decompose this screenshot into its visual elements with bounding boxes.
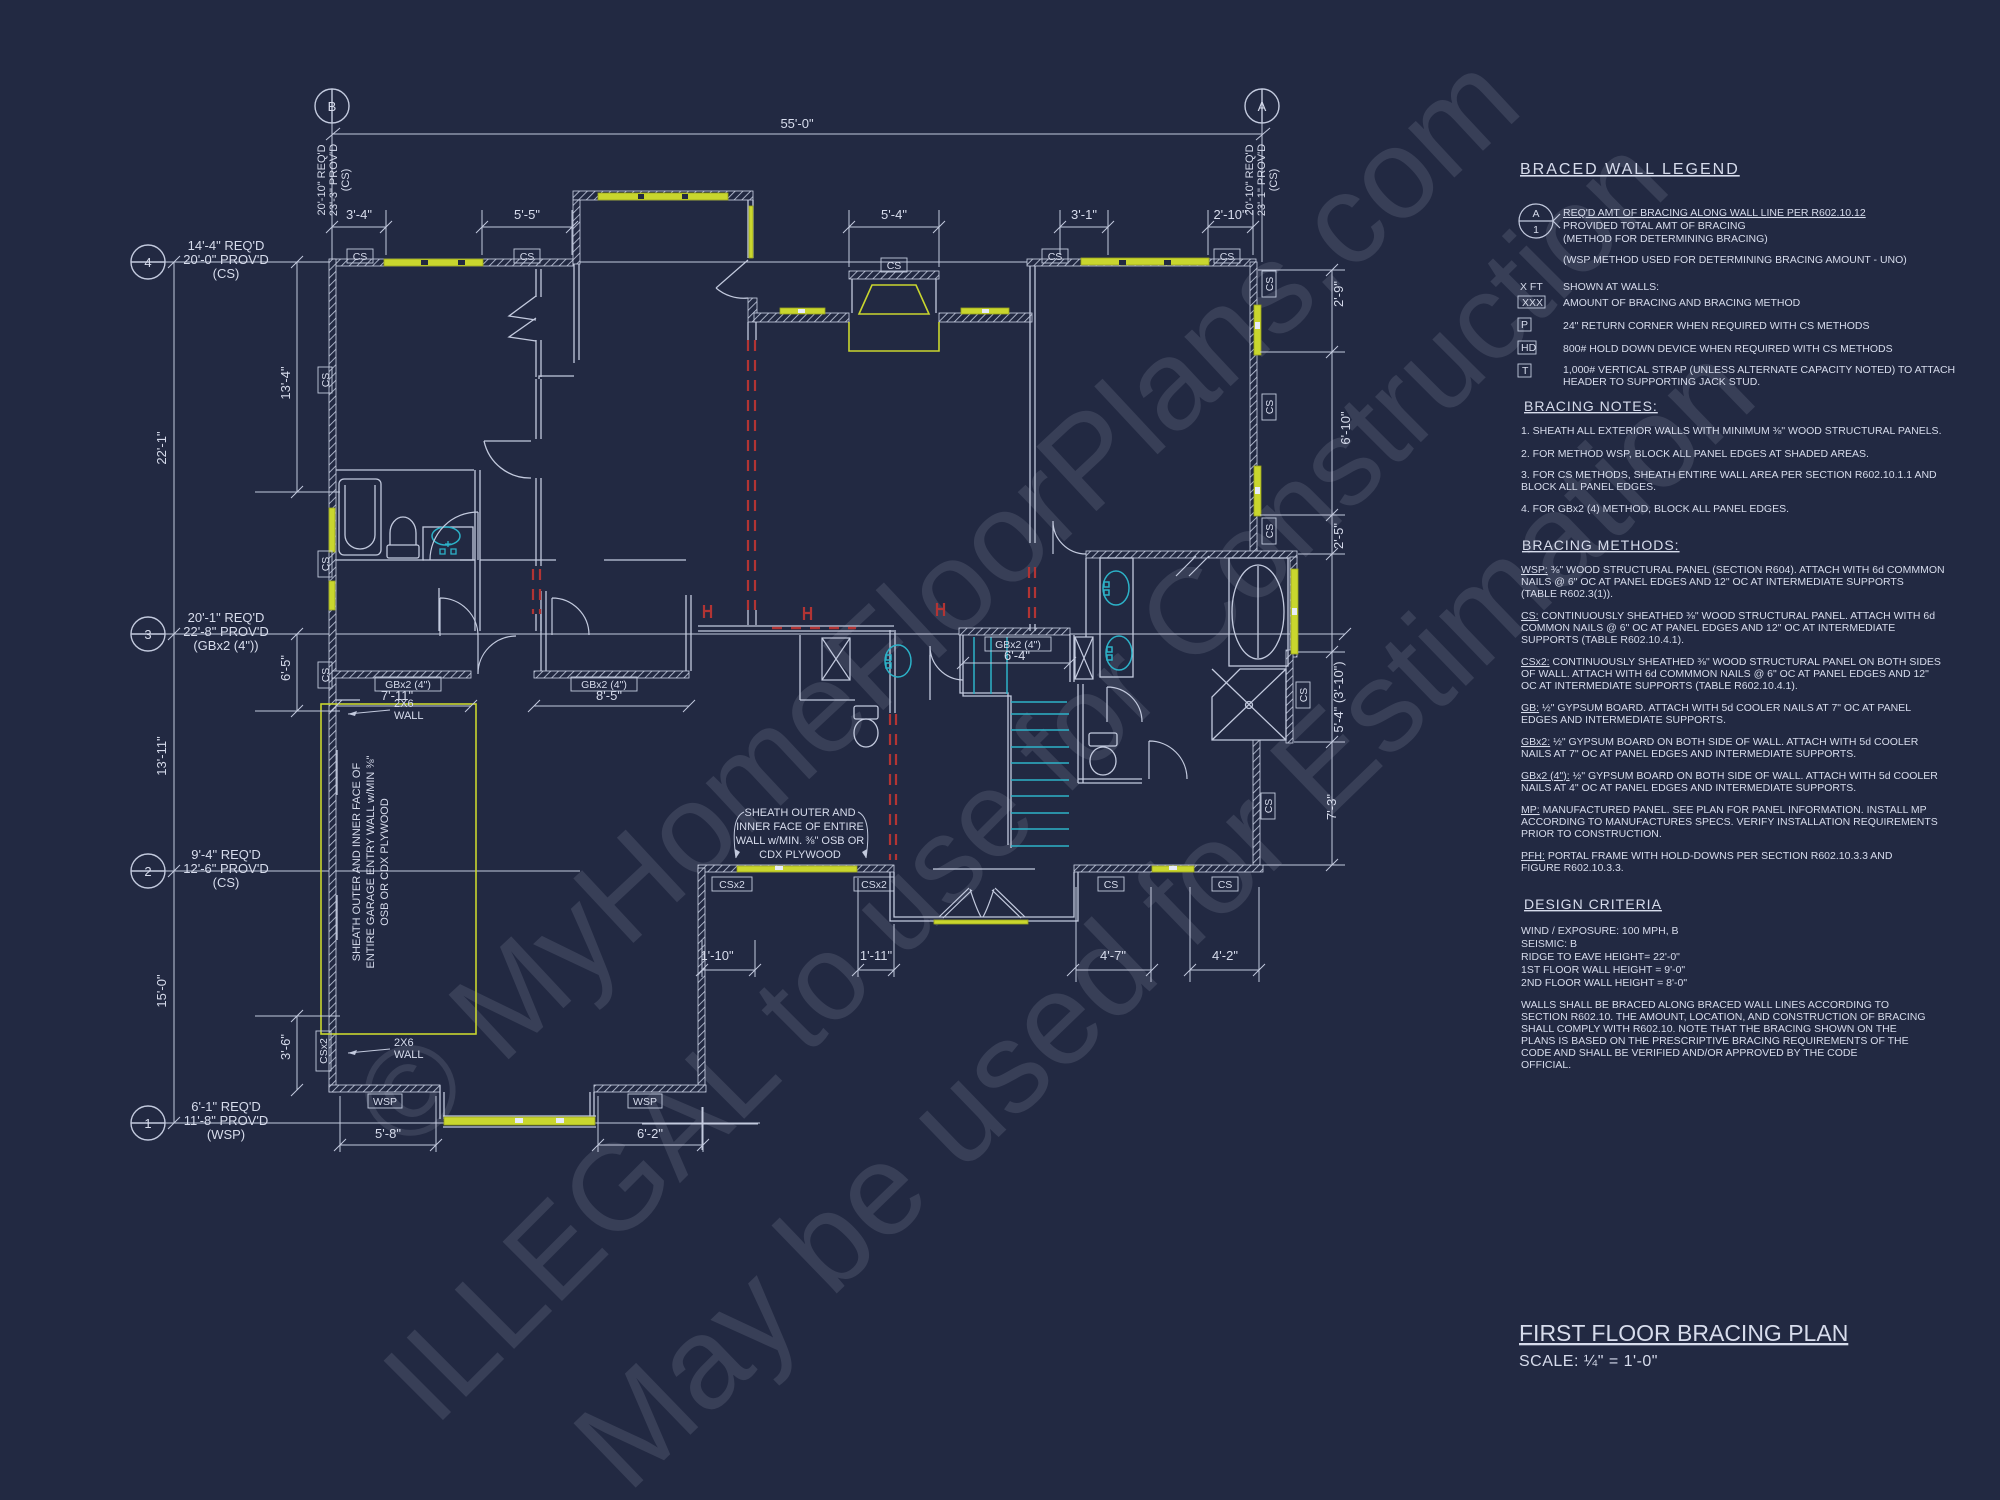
svg-text:ENTIRE GARAGE ENTRY WALL w/MIN: ENTIRE GARAGE ENTRY WALL w/MIN ⅜" xyxy=(365,755,377,968)
svg-text:SHOWN AT WALLS:: SHOWN AT WALLS: xyxy=(1563,281,1659,293)
svg-text:GBx2: ½" GYPSUM BOARD ON BOTH: GBx2: ½" GYPSUM BOARD ON BOTH SIDE OF WA… xyxy=(1521,736,1919,748)
svg-text:15'-0": 15'-0" xyxy=(154,974,169,1008)
svg-text:20'-10" REQ'D: 20'-10" REQ'D xyxy=(316,144,328,215)
svg-text:AMOUNT OF BRACING AND BRACING: AMOUNT OF BRACING AND BRACING METHOD xyxy=(1563,297,1801,309)
svg-text:BRACING METHODS:: BRACING METHODS: xyxy=(1522,537,1680,553)
svg-text:B: B xyxy=(328,99,337,114)
svg-text:CSx2: CSx2 xyxy=(318,1038,330,1064)
svg-text:CS: CS xyxy=(1104,879,1119,891)
svg-text:1'-10": 1'-10" xyxy=(700,948,734,963)
svg-text:5'-8": 5'-8" xyxy=(375,1126,401,1141)
svg-text:BLOCK ALL PANEL EDGES.: BLOCK ALL PANEL EDGES. xyxy=(1521,481,1656,493)
svg-text:24" RETURN CORNER WHEN REQUIRE: 24" RETURN CORNER WHEN REQUIRED WITH CS … xyxy=(1563,320,1870,332)
svg-text:PLANS IS BASED ON THE PRESCRIP: PLANS IS BASED ON THE PRESCRIPTIVE BRACI… xyxy=(1521,1035,1909,1047)
svg-text:WALL: WALL xyxy=(394,710,424,722)
svg-text:HD: HD xyxy=(1521,342,1537,354)
svg-text:CDX PLYWOOD: CDX PLYWOOD xyxy=(759,849,841,861)
svg-text:X FT: X FT xyxy=(1520,281,1543,293)
svg-text:NAILS @ 6" OC AT PANEL EDGES A: NAILS @ 6" OC AT PANEL EDGES AND 12" OC … xyxy=(1521,576,1904,588)
svg-text:SECTION R602.10. THE AMOUNT, L: SECTION R602.10. THE AMOUNT, LOCATION, A… xyxy=(1521,1011,1926,1023)
svg-text:(GBx2 (4")): (GBx2 (4")) xyxy=(193,638,258,653)
svg-text:CS: CS xyxy=(1048,251,1063,263)
svg-text:GBx2 (4"): ½" GYPSUM BOARD ON: GBx2 (4"): ½" GYPSUM BOARD ON BOTH SIDE … xyxy=(1521,770,1938,782)
svg-text:12'-6" PROV'D: 12'-6" PROV'D xyxy=(183,861,268,876)
svg-text:HEADER TO SUPPORTING JACK STUD: HEADER TO SUPPORTING JACK STUD. xyxy=(1563,376,1760,388)
svg-text:CS: CS xyxy=(320,373,332,388)
svg-text:CS: CS xyxy=(887,260,902,272)
svg-text:CS: CS xyxy=(320,668,332,683)
svg-text:6'-5": 6'-5" xyxy=(278,655,293,681)
svg-text:P: P xyxy=(1521,319,1528,331)
svg-text:RIDGE TO EAVE HEIGHT= 22'-0": RIDGE TO EAVE HEIGHT= 22'-0" xyxy=(1521,951,1680,963)
svg-text:MP: MANUFACTURED PANEL. SEE PL: MP: MANUFACTURED PANEL. SEE PLAN FOR PAN… xyxy=(1521,804,1927,816)
svg-text:3. FOR CS METHODS, SHEATH ENTI: 3. FOR CS METHODS, SHEATH ENTIRE WALL AR… xyxy=(1521,469,1937,481)
svg-text:(METHOD FOR DETERMINING BRACIN: (METHOD FOR DETERMINING BRACING) xyxy=(1563,233,1768,245)
svg-text:20'-0" PROV'D: 20'-0" PROV'D xyxy=(183,252,268,267)
svg-text:14'-4" REQ'D: 14'-4" REQ'D xyxy=(188,238,265,253)
svg-text:A: A xyxy=(1258,99,1267,114)
svg-text:2ND FLOOR WALL HEIGHT = 8'-0": 2ND FLOOR WALL HEIGHT = 8'-0" xyxy=(1521,977,1687,989)
svg-text:T: T xyxy=(1522,365,1529,377)
svg-text:CS: CONTINUOUSLY SHEATHED ⅜" W: CS: CONTINUOUSLY SHEATHED ⅜" WOOD STRUCT… xyxy=(1521,610,1935,622)
svg-text:WSP: ⅜" WOOD STRUCTURAL PANEL: WSP: ⅜" WOOD STRUCTURAL PANEL (SECTION R… xyxy=(1521,564,1945,576)
svg-text:(CS): (CS) xyxy=(340,169,352,192)
svg-text:WALL: WALL xyxy=(394,1049,424,1061)
svg-text:CSx2: CSx2 xyxy=(719,879,745,891)
svg-text:OC AT INTERMEDIATE SUPPORTS (T: OC AT INTERMEDIATE SUPPORTS (TABLE R602.… xyxy=(1521,680,1798,692)
svg-text:5'-4" (3'-10"): 5'-4" (3'-10") xyxy=(1331,661,1346,732)
svg-text:(WSP): (WSP) xyxy=(207,1127,245,1142)
svg-text:22'-8" PROV'D: 22'-8" PROV'D xyxy=(183,624,268,639)
svg-text:FIGURE R602.10.3.3.: FIGURE R602.10.3.3. xyxy=(1521,862,1624,874)
svg-text:(CS): (CS) xyxy=(1268,169,1280,192)
svg-text:REQ'D AMT OF BRACING ALONG WAL: REQ'D AMT OF BRACING ALONG WALL LINE PER… xyxy=(1563,207,1866,219)
svg-text:SUPPORTS (TABLE R602.10.4.1).: SUPPORTS (TABLE R602.10.4.1). xyxy=(1521,634,1684,646)
svg-text:INNER FACE OF ENTIRE: INNER FACE OF ENTIRE xyxy=(736,821,864,833)
svg-text:23'-1" PROV'D: 23'-1" PROV'D xyxy=(1256,144,1268,216)
svg-text:SCALE: ¼" = 1'-0": SCALE: ¼" = 1'-0" xyxy=(1519,1353,1658,1370)
svg-text:1: 1 xyxy=(144,1116,151,1131)
svg-text:3'-6": 3'-6" xyxy=(278,1034,293,1060)
svg-text:13'-4": 13'-4" xyxy=(278,366,293,400)
svg-text:XXX: XXX xyxy=(1522,297,1543,309)
svg-text:2. FOR METHOD WSP, BLOCK ALL P: 2. FOR METHOD WSP, BLOCK ALL PANEL EDGES… xyxy=(1521,448,1869,460)
svg-text:GBx2 (4"): GBx2 (4") xyxy=(581,679,627,691)
svg-text:4: 4 xyxy=(144,255,151,270)
svg-text:CS: CS xyxy=(1264,277,1276,292)
svg-text:BRACED WALL LEGEND: BRACED WALL LEGEND xyxy=(1520,161,1740,178)
svg-text:55'-0": 55'-0" xyxy=(780,116,814,131)
svg-text:WALL w/MIN. ⅜" OSB OR: WALL w/MIN. ⅜" OSB OR xyxy=(736,835,864,847)
svg-text:3: 3 xyxy=(144,627,151,642)
svg-text:1ST FLOOR WALL HEIGHT = 9'-0": 1ST FLOOR WALL HEIGHT = 9'-0" xyxy=(1521,964,1685,976)
svg-text:23'-3" PROV'D: 23'-3" PROV'D xyxy=(328,144,340,216)
svg-text:CS: CS xyxy=(1298,688,1310,703)
svg-text:WSP: WSP xyxy=(633,1096,657,1108)
svg-text:OFFICIAL.: OFFICIAL. xyxy=(1521,1059,1571,1071)
svg-text:1. SHEATH ALL EXTERIOR WALLS W: 1. SHEATH ALL EXTERIOR WALLS WITH MINIMU… xyxy=(1521,425,1941,437)
svg-text:CS: CS xyxy=(320,557,332,572)
svg-text:WSP: WSP xyxy=(373,1096,397,1108)
svg-text:SEISMIC: B: SEISMIC: B xyxy=(1521,938,1577,950)
svg-text:5'-5": 5'-5" xyxy=(514,207,540,222)
svg-text:22'-1": 22'-1" xyxy=(154,431,169,465)
svg-text:2'-10": 2'-10" xyxy=(1213,207,1247,222)
svg-text:7'-3": 7'-3" xyxy=(1324,794,1339,820)
svg-text:(WSP METHOD USED FOR DETERMINI: (WSP METHOD USED FOR DETERMINING BRACING… xyxy=(1563,254,1907,266)
svg-text:2X6: 2X6 xyxy=(394,698,414,710)
svg-text:11'-8" PROV'D: 11'-8" PROV'D xyxy=(184,1113,268,1128)
svg-text:1'-11": 1'-11" xyxy=(860,948,893,963)
svg-text:13'-11": 13'-11" xyxy=(154,736,169,776)
svg-text:(CS): (CS) xyxy=(213,266,240,281)
svg-text:4'-7": 4'-7" xyxy=(1100,948,1126,963)
svg-text:6'-10": 6'-10" xyxy=(1338,411,1353,445)
svg-text:PFH: PORTAL FRAME WITH HOLD-DO: PFH: PORTAL FRAME WITH HOLD-DOWNS PER SE… xyxy=(1521,850,1893,862)
svg-text:CS: CS xyxy=(520,251,535,263)
svg-text:SHALL COMPLY WITH R602.10. NOT: SHALL COMPLY WITH R602.10. NOTE THAT THE… xyxy=(1521,1023,1897,1035)
svg-text:5'-4": 5'-4" xyxy=(881,207,907,222)
svg-text:ACCORDING TO MANUFACTURES SPEC: ACCORDING TO MANUFACTURES SPECS. VERIFY … xyxy=(1521,816,1938,828)
svg-text:COMMON NAILS @ 6" OC AT PANEL: COMMON NAILS @ 6" OC AT PANEL EDGES AND … xyxy=(1521,622,1895,634)
svg-text:FIRST FLOOR BRACING PLAN: FIRST FLOOR BRACING PLAN xyxy=(1519,1320,1848,1346)
svg-text:9'-4" REQ'D: 9'-4" REQ'D xyxy=(191,847,261,862)
svg-text:NAILS AT 7" OC AT PANEL EDGES: NAILS AT 7" OC AT PANEL EDGES AND INTERM… xyxy=(1521,748,1856,760)
svg-text:2'-9": 2'-9" xyxy=(1331,281,1346,307)
svg-text:OF WALL. ATTACH WITH 6d COMMMO: OF WALL. ATTACH WITH 6d COMMMON NAILS @ … xyxy=(1521,668,1929,680)
svg-text:A: A xyxy=(1532,208,1539,220)
svg-text:2: 2 xyxy=(144,864,151,879)
svg-text:20'-1" REQ'D: 20'-1" REQ'D xyxy=(188,610,265,625)
svg-text:CSx2: CSx2 xyxy=(861,879,887,891)
svg-text:SHEATH OUTER AND: SHEATH OUTER AND xyxy=(744,807,855,819)
svg-text:GB: ½" GYPSUM BOARD. ATTACH WI: GB: ½" GYPSUM BOARD. ATTACH WITH 5d COOL… xyxy=(1521,702,1911,714)
svg-text:WALLS SHALL BE BRACED ALONG BR: WALLS SHALL BE BRACED ALONG BRACED WALL … xyxy=(1521,999,1889,1011)
svg-text:CS: CS xyxy=(1220,251,1235,263)
svg-text:6'-2": 6'-2" xyxy=(637,1126,663,1141)
svg-text:NAILS AT 4" OC AT PANEL EDGES: NAILS AT 4" OC AT PANEL EDGES AND INTERM… xyxy=(1521,782,1856,794)
svg-text:PROVIDED TOTAL AMT OF BRACING: PROVIDED TOTAL AMT OF BRACING xyxy=(1563,220,1746,232)
svg-text:2X6: 2X6 xyxy=(394,1037,414,1049)
svg-text:CS: CS xyxy=(1263,799,1275,814)
svg-text:CODE AND SHALL BE VERIFIED AND: CODE AND SHALL BE VERIFIED AND/OR APPROV… xyxy=(1521,1047,1857,1059)
svg-text:CS: CS xyxy=(1218,879,1233,891)
svg-text:(TABLE R602.3(1)).: (TABLE R602.3(1)). xyxy=(1521,588,1613,600)
svg-text:20'-10" REQ'D: 20'-10" REQ'D xyxy=(1244,144,1256,215)
svg-text:6'-1" REQ'D: 6'-1" REQ'D xyxy=(191,1099,261,1114)
svg-text:2'-5": 2'-5" xyxy=(1331,523,1346,549)
svg-text:4'-2": 4'-2" xyxy=(1212,948,1238,963)
svg-text:BRACING NOTES:: BRACING NOTES: xyxy=(1524,398,1658,414)
svg-text:GBx2 (4"): GBx2 (4") xyxy=(385,679,431,691)
svg-text:4. FOR GBx2 (4) METHOD, BLOCK: 4. FOR GBx2 (4) METHOD, BLOCK ALL PANEL … xyxy=(1521,503,1789,515)
svg-text:PRIOR TO CONSTRUCTION.: PRIOR TO CONSTRUCTION. xyxy=(1521,828,1662,840)
svg-text:SHEATH OUTER AND INNER FACE OF: SHEATH OUTER AND INNER FACE OF xyxy=(351,763,363,962)
svg-text:WIND / EXPOSURE: 100 MPH, B: WIND / EXPOSURE: 100 MPH, B xyxy=(1521,925,1679,937)
svg-text:3'-4": 3'-4" xyxy=(346,207,372,222)
svg-text:CSx2: CONTINUOUSLY SHEATHED ⅜": CSx2: CONTINUOUSLY SHEATHED ⅜" WOOD STRU… xyxy=(1521,656,1941,668)
svg-text:3'-1": 3'-1" xyxy=(1071,207,1097,222)
svg-text:800# HOLD DOWN DEVICE WHEN REQ: 800# HOLD DOWN DEVICE WHEN REQUIRED WITH… xyxy=(1563,343,1893,355)
svg-text:GBx2 (4"): GBx2 (4") xyxy=(995,639,1041,651)
svg-text:DESIGN CRITERIA: DESIGN CRITERIA xyxy=(1524,896,1662,912)
svg-text:OSB OR CDX PLYWOOD: OSB OR CDX PLYWOOD xyxy=(379,798,391,926)
svg-text:CS: CS xyxy=(1264,524,1276,539)
svg-text:1: 1 xyxy=(1533,224,1539,236)
svg-text:EDGES AND INTERMEDIATE SUPPORT: EDGES AND INTERMEDIATE SUPPORTS. xyxy=(1521,714,1726,726)
svg-text:(CS): (CS) xyxy=(213,875,240,890)
svg-text:CS: CS xyxy=(1264,400,1276,415)
svg-text:1,000# VERTICAL STRAP (UNLESS: 1,000# VERTICAL STRAP (UNLESS ALTERNATE … xyxy=(1563,364,1955,376)
svg-text:CS: CS xyxy=(353,251,368,263)
